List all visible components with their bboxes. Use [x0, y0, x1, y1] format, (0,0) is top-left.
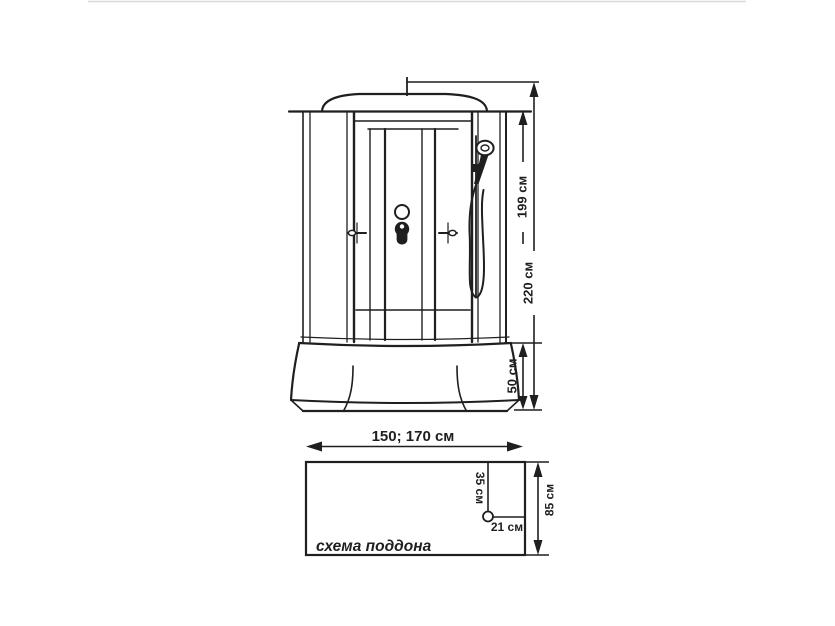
roof-dome — [322, 94, 487, 111]
door-handle-right-icon — [439, 223, 457, 243]
apron-seam-left — [344, 366, 354, 411]
dimension-total-height — [519, 82, 539, 410]
dim-label-220: 220 см — [521, 262, 536, 304]
drawing-canvas: 199 см 220 см 50 см 150; 170 см 35 см 21… — [0, 0, 835, 626]
dim-label-21: 21 см — [491, 520, 523, 534]
plan-caption: схема поддона — [316, 538, 432, 555]
dim-label-199: 199 см — [515, 176, 530, 218]
shower-tray-front — [291, 337, 519, 411]
dim-label-50: 50 см — [505, 359, 520, 394]
door-handle-left-icon — [348, 223, 366, 243]
dim-label-35: 35 см — [473, 472, 487, 504]
dim-label-85: 85 см — [543, 484, 557, 516]
dimension-plan-depth — [534, 462, 543, 555]
dimension-tray-height — [519, 343, 528, 410]
apron-seam-right — [457, 366, 467, 411]
cabin-front-view — [289, 94, 531, 342]
height-dimensions — [407, 77, 542, 410]
mixer-knob-icon — [395, 205, 409, 245]
shower-cabin-diagram: 199 см 220 см 50 см 150; 170 см 35 см 21… — [0, 0, 835, 626]
dim-label-width: 150; 170 см — [372, 428, 455, 445]
